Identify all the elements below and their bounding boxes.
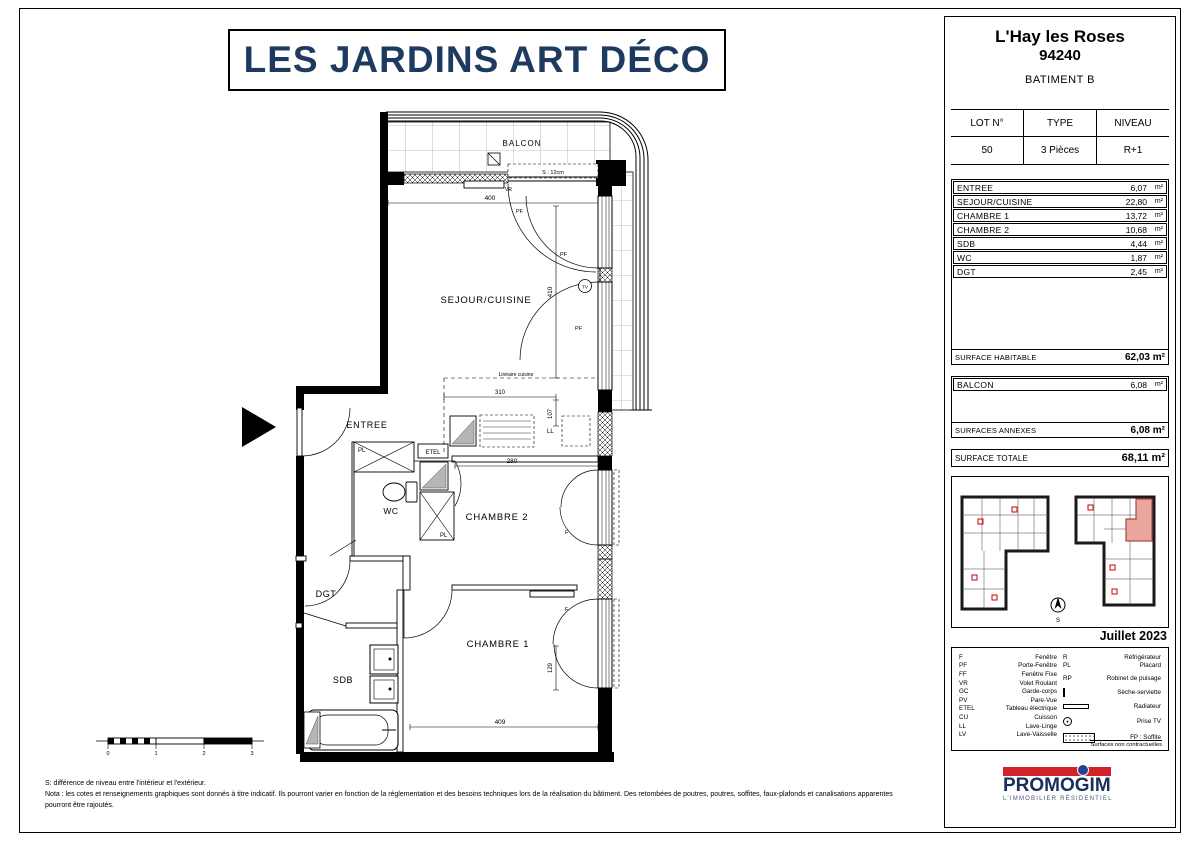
logo-name: PROMOGIM: [1003, 776, 1119, 796]
chambre1-label: CHAMBRE 1: [467, 639, 530, 650]
pl-label: PL: [358, 448, 366, 454]
plan-date: Juillet 2023: [1100, 629, 1167, 643]
etel-label: ETEL: [425, 450, 441, 456]
dgt-label: DGT: [316, 589, 337, 599]
svg-text:TV: TV: [582, 285, 588, 290]
balcony-door: S : 12cm: [508, 164, 598, 272]
svg-text:409: 409: [495, 719, 506, 726]
sdb-fixtures: [304, 645, 398, 750]
scale-bar: 0 1 2 3: [96, 738, 264, 757]
svg-text:PF: PF: [560, 252, 568, 258]
svg-text:129: 129: [548, 662, 554, 673]
dim-310: 310: [495, 390, 506, 396]
radiateur-icon: [1063, 704, 1089, 709]
svg-text:400: 400: [485, 195, 496, 202]
surface-habitable-row: SURFACE HABITABLE 62,03 m²: [952, 349, 1168, 364]
floor-plan-drawing: BALCON: [0, 0, 940, 842]
svg-text:410: 410: [547, 286, 554, 297]
legend: FFenêtre PFPorte-Fenêtre FFFenêtre Fixe …: [951, 647, 1169, 751]
lot-header-type: TYPE: [1023, 110, 1097, 136]
svg-text:PF: PF: [575, 326, 583, 332]
ll-label: LL: [547, 429, 554, 435]
key-plan-left: [962, 497, 1048, 609]
footer-line-2: Nota : les cotes et renseignements graph…: [45, 790, 917, 812]
seche-serviette-icon: [1063, 688, 1065, 697]
info-panel: L'Hay les Roses 94240 BATIMENT B LOT N° …: [944, 16, 1176, 828]
floor-plan-sheet: LES JARDINS ART DÉCO: [0, 0, 1191, 842]
lot-table: LOT N° TYPE NIVEAU 50 3 Pièces R+1: [951, 109, 1169, 165]
svg-text:0: 0: [106, 751, 109, 757]
rooms-area-table: ENTREE6,07m² SEJOUR/CUISINE22,80m² CHAMB…: [951, 179, 1169, 365]
chambre2-label: CHAMBRE 2: [466, 512, 529, 523]
dimensions: [388, 200, 598, 730]
table-row: CHAMBRE 113,72m²: [953, 209, 1167, 222]
entrance-door: [297, 408, 350, 456]
svg-text:PF: PF: [516, 209, 524, 215]
sejour-label: SEJOUR/CUISINE: [441, 295, 532, 306]
lot-niveau: R+1: [1097, 137, 1169, 164]
balcon-label: BALCON: [503, 139, 542, 148]
project-city: L'Hay les Roses: [945, 27, 1175, 47]
annexes-table: BALCON6,08m² SURFACES ANNEXES 6,08 m²: [951, 376, 1169, 438]
svg-text:280: 280: [507, 458, 518, 465]
svg-text:1: 1: [154, 751, 157, 757]
compass-icon: S: [1051, 597, 1065, 624]
lot-header-niveau: NIVEAU: [1097, 110, 1169, 136]
site-key-plans: S: [951, 476, 1169, 628]
key-plan-right: [1076, 497, 1154, 605]
svg-text:S: S: [1056, 618, 1060, 624]
entrance-arrow-icon: [242, 407, 276, 447]
lot-header-num: LOT N°: [951, 110, 1023, 136]
table-row: SDB4,44m²: [953, 237, 1167, 250]
volet-roulant-strips: [614, 470, 619, 688]
logo-tagline: L'IMMOBILIER RÉSIDENTIEL: [1003, 796, 1119, 802]
prise-tv-icon: ●: [1063, 717, 1072, 726]
table-row: BALCON6,08m²: [953, 378, 1167, 391]
pl-label: PL: [440, 533, 448, 539]
sdb-label: SDB: [333, 675, 353, 685]
surface-totale-row: SURFACE TOTALE 68,11 m²: [951, 449, 1169, 467]
radiator: [530, 591, 574, 597]
svg-text:3: 3: [250, 751, 253, 757]
kitchen-label: Linéaire cuisine: [499, 372, 534, 378]
radiator: [464, 181, 504, 188]
table-row: SEJOUR/CUISINE22,80m²: [953, 195, 1167, 208]
tv-socket-icon: TV: [579, 280, 592, 293]
legend-left-column: FFenêtre PFPorte-Fenêtre FFFenêtre Fixe …: [959, 653, 1057, 744]
footer-line-1: S: différence de niveau entre l'intérieu…: [45, 779, 917, 790]
lot-type: 3 Pièces: [1023, 137, 1097, 164]
entree-label: ENTREE: [346, 420, 387, 430]
project-building: BATIMENT B: [945, 74, 1175, 86]
promogim-logo: PROMOGIM L'IMMOBILIER RÉSIDENTIEL: [1003, 767, 1119, 802]
legend-right-column: RRéfrigérateur PLPlacard RPRobinet de pu…: [1063, 653, 1161, 744]
legend-note: Surfaces non contractuelles: [1090, 740, 1162, 748]
project-postal-code: 94240: [945, 47, 1175, 64]
dim-107: 107: [548, 408, 554, 419]
table-row: ENTREE6,07m²: [953, 181, 1167, 194]
entree-fittings: PL ETEL PL: [354, 416, 476, 540]
lot-number: 50: [951, 137, 1023, 164]
wc-fixtures: [383, 482, 417, 502]
footer-notes: S: différence de niveau entre l'intérieu…: [45, 779, 917, 812]
surfaces-annexes-row: SURFACES ANNEXES 6,08 m²: [952, 422, 1168, 437]
svg-text:VR: VR: [505, 187, 512, 193]
wc-label: WC: [383, 506, 398, 516]
svg-text:2: 2: [202, 751, 205, 757]
logo-red-bar: [1003, 767, 1111, 776]
table-row: DGT2,45m²: [953, 265, 1167, 278]
table-row: CHAMBRE 210,68m²: [953, 223, 1167, 236]
logo-blue-dot: [1077, 764, 1089, 776]
threshold-note: S : 12cm: [542, 170, 564, 176]
project-header: L'Hay les Roses 94240 BATIMENT B: [945, 27, 1175, 86]
window-tags: PF PF PF F F VR: [505, 187, 583, 613]
table-row: WC1,87m²: [953, 251, 1167, 264]
